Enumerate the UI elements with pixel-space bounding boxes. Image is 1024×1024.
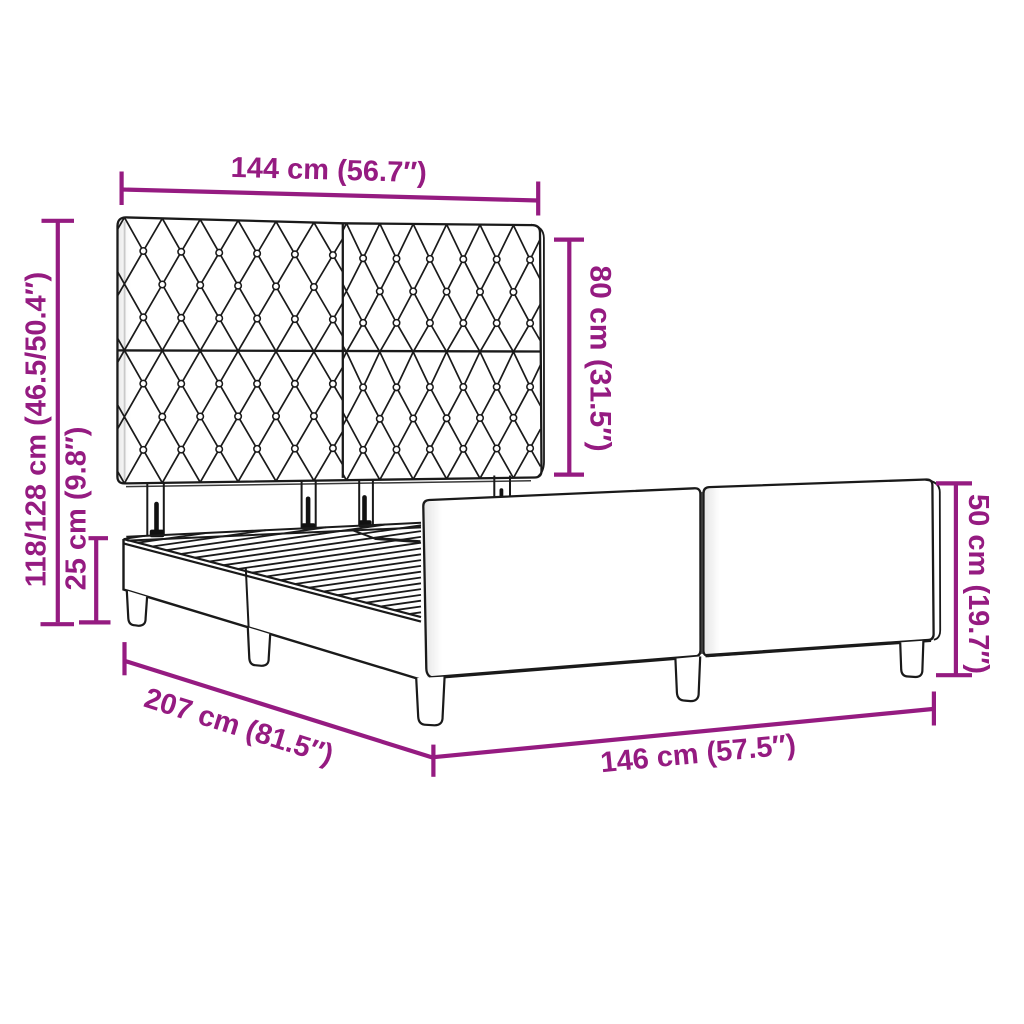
svg-text:144 cm (56.7″): 144 cm (56.7″)	[230, 152, 427, 189]
svg-text:80 cm (31.5″): 80 cm (31.5″)	[584, 265, 617, 451]
svg-text:118/128 cm (46.5/50.4″): 118/128 cm (46.5/50.4″)	[20, 272, 52, 587]
svg-text:25 cm (9.8″): 25 cm (9.8″)	[61, 427, 93, 591]
svg-text:50 cm (19.7″): 50 cm (19.7″)	[962, 494, 994, 674]
